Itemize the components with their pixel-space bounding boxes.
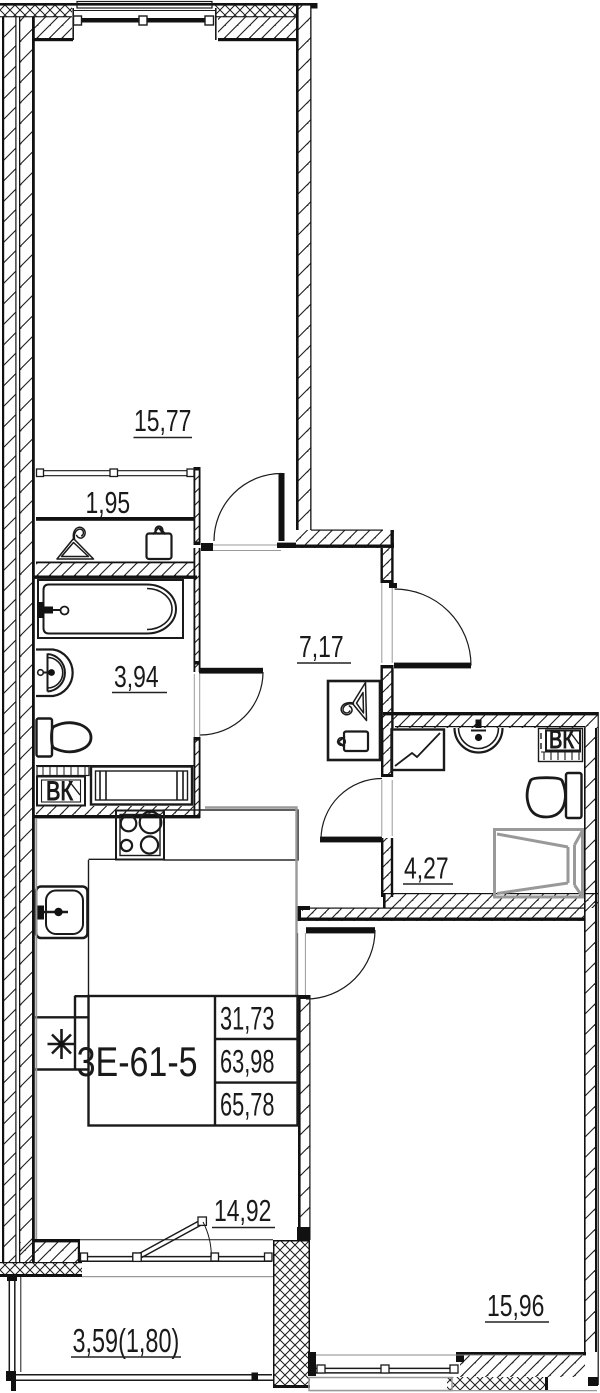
svg-text:31,73: 31,73 (220, 1000, 274, 1036)
svg-text:3Е-61-5: 3Е-61-5 (77, 1039, 198, 1086)
svg-text:65,78: 65,78 (220, 1086, 274, 1122)
svg-text:3,94: 3,94 (114, 659, 159, 694)
svg-text:4,27: 4,27 (404, 850, 449, 885)
svg-text:7,17: 7,17 (299, 629, 344, 664)
svg-text:15,96: 15,96 (487, 1288, 544, 1323)
svg-text:1,95: 1,95 (86, 485, 131, 520)
svg-text:14,92: 14,92 (214, 1193, 271, 1228)
svg-text:3,59(1,80): 3,59(1,80) (73, 1323, 180, 1360)
svg-text:63,98: 63,98 (220, 1043, 274, 1079)
svg-text:15,77: 15,77 (134, 403, 191, 438)
svg-text:ВК: ВК (549, 726, 575, 754)
